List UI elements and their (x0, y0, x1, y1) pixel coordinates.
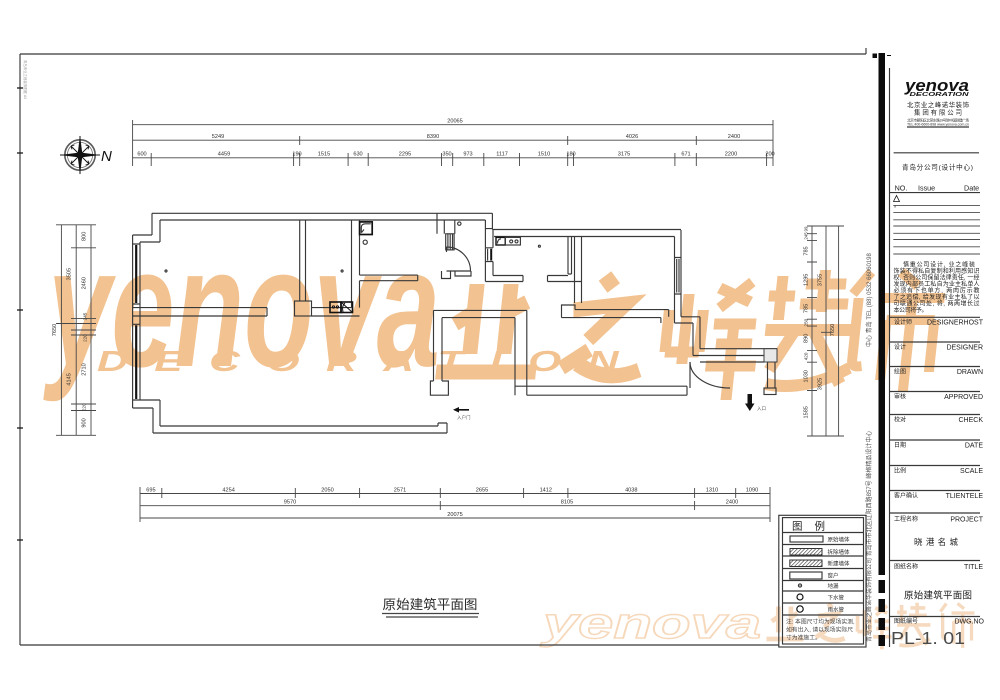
svg-text:7650: 7650 (52, 324, 58, 336)
svg-text:比例: 比例 (894, 467, 906, 475)
svg-text:8390: 8390 (427, 134, 439, 140)
svg-text:如有出入, 请以现场实际尺: 如有出入, 请以现场实际尺 (786, 626, 853, 634)
svg-text:本公司将予。: 本公司将予。 (894, 306, 928, 314)
svg-text:可联通公司处, 将, 两两增长过: 可联通公司处, 将, 两两增长过 (894, 300, 980, 308)
svg-text:CHECK: CHECK (958, 417, 983, 424)
svg-text:PL-1. 01: PL-1. 01 (891, 628, 965, 648)
svg-text:1030: 1030 (804, 370, 810, 382)
svg-text:4145: 4145 (67, 373, 73, 385)
svg-text:拆除墙体: 拆除墙体 (828, 548, 851, 556)
svg-text:TEL:400-6600-898 www.yenova.co: TEL:400-6600-898 www.yenova.com.cn (907, 123, 969, 127)
svg-text:原始建筑平面图: 原始建筑平面图 (383, 597, 478, 612)
svg-text:雨水管: 雨水管 (828, 606, 845, 614)
svg-text:青岛市业之峰装饰图框 A3: 青岛市业之峰装饰图框 A3 (23, 60, 28, 99)
svg-text:973: 973 (463, 152, 472, 158)
svg-text:671: 671 (681, 152, 690, 158)
svg-text:设计: 设计 (894, 343, 906, 351)
svg-text:2655: 2655 (476, 488, 488, 494)
svg-text:2295: 2295 (399, 152, 411, 158)
svg-text:785: 785 (804, 246, 810, 255)
svg-text:4459: 4459 (218, 152, 230, 158)
svg-text:4026: 4026 (626, 134, 638, 140)
svg-text:NO.: NO. (895, 184, 908, 193)
svg-text:2571: 2571 (394, 488, 406, 494)
svg-text:DATE: DATE (965, 443, 983, 450)
svg-text:饰装不得私自复制和利用感知识: 饰装不得私自复制和利用感知识 (894, 267, 980, 275)
svg-text:入户门: 入户门 (457, 414, 471, 421)
svg-text:原始建筑平面图: 原始建筑平面图 (904, 590, 972, 602)
svg-text:TLIENTELE: TLIENTELE (946, 493, 984, 500)
svg-text:注: 本图尺寸均为现场实测,: 注: 本图尺寸均为现场实测, (786, 618, 855, 626)
svg-text:600: 600 (137, 152, 146, 158)
svg-text:慎重公司设计, 业之峰装: 慎重公司设计, 业之峰装 (903, 261, 975, 269)
svg-text:图例: 图例 (792, 520, 837, 533)
svg-text:245: 245 (804, 232, 809, 240)
svg-text:必须有下也单方, 两肉厉示教: 必须有下也单方, 两肉厉示教 (894, 287, 980, 295)
svg-text:设计师: 设计师 (894, 318, 912, 326)
svg-text:4254: 4254 (222, 488, 234, 494)
svg-text:工程名称: 工程名称 (894, 515, 918, 523)
svg-text:DECORATION: DECORATION (910, 92, 971, 98)
svg-text:客户确认: 客户确认 (894, 492, 918, 500)
svg-text:下水管: 下水管 (828, 594, 845, 602)
svg-text:1310: 1310 (706, 488, 718, 494)
svg-text:20065: 20065 (447, 119, 463, 125)
svg-text:5249: 5249 (212, 134, 224, 140)
svg-text:2050: 2050 (321, 488, 333, 494)
svg-text:Date: Date (964, 184, 979, 193)
svg-text:350: 350 (442, 152, 451, 158)
svg-text:寸为准施工。: 寸为准施工。 (786, 634, 821, 642)
svg-text:窗户: 窗户 (828, 572, 839, 580)
svg-text:1412: 1412 (540, 488, 552, 494)
svg-text:180: 180 (566, 152, 575, 158)
svg-text:630: 630 (353, 152, 362, 158)
svg-text:SCALE: SCALE (960, 468, 983, 475)
svg-text:2200: 2200 (725, 152, 737, 158)
svg-text:绘图: 绘图 (894, 368, 906, 376)
svg-text:220: 220 (82, 403, 87, 411)
svg-text:DESIGNER: DESIGNER (946, 345, 983, 352)
svg-text:N: N (101, 148, 112, 165)
svg-text:785: 785 (804, 304, 810, 313)
svg-text:TITLE: TITLE (964, 564, 983, 571)
svg-text:Issue: Issue (918, 184, 935, 193)
svg-text:420: 420 (804, 352, 809, 360)
svg-text:原始墙体: 原始墙体 (828, 536, 851, 544)
svg-text:DRAWN: DRAWN (957, 369, 983, 376)
svg-text:3505: 3505 (67, 268, 73, 280)
svg-text:3925: 3925 (818, 378, 824, 390)
svg-text:DWG.NO: DWG.NO (954, 619, 984, 626)
svg-text:4038: 4038 (625, 488, 637, 494)
svg-text:2400: 2400 (726, 500, 738, 506)
svg-text:DESIGNERHOST: DESIGNERHOST (927, 320, 984, 327)
svg-text:245: 245 (83, 312, 88, 320)
svg-text:7650: 7650 (830, 324, 836, 336)
svg-text:图纸名称: 图纸名称 (894, 563, 918, 571)
svg-text:2460: 2460 (82, 277, 88, 289)
svg-text:审核: 审核 (894, 393, 906, 401)
svg-text:250: 250 (804, 318, 809, 326)
svg-text:8105: 8105 (561, 500, 573, 506)
svg-text:北京业之峰诺华装饰: 北京业之峰诺华装饰 (907, 100, 970, 109)
svg-text:3755: 3755 (818, 274, 824, 286)
svg-text:APPROVED: APPROVED (944, 394, 983, 401)
svg-text:校对: 校对 (894, 416, 906, 424)
svg-text:中心 青岛 TEL (88) 0532 66060198: 中心 青岛 TEL (88) 0532 66060198 (865, 253, 873, 347)
svg-text:新建墙体: 新建墙体 (828, 560, 851, 568)
svg-text:1585: 1585 (804, 406, 810, 418)
svg-text:青岛分公司(设计中心): 青岛分公司(设计中心) (902, 163, 973, 172)
svg-text:1510: 1510 (538, 152, 550, 158)
svg-text:地漏: 地漏 (828, 582, 840, 590)
svg-text:220: 220 (83, 334, 88, 342)
svg-text:2710: 2710 (82, 363, 88, 375)
svg-text:2400: 2400 (728, 134, 740, 140)
svg-text:800: 800 (82, 232, 88, 241)
svg-text:190: 190 (292, 152, 301, 158)
svg-text:PROJECT: PROJECT (950, 517, 983, 524)
svg-text:1515: 1515 (318, 152, 330, 158)
svg-text:20075: 20075 (447, 512, 463, 518)
svg-text:200: 200 (765, 152, 774, 158)
svg-text:权, 否则公司保留法律责任, 一经: 权, 否则公司保留法律责任, 一经 (894, 274, 980, 282)
svg-text:900: 900 (82, 418, 88, 427)
svg-text:1117: 1117 (496, 152, 508, 158)
svg-text:890: 890 (804, 334, 810, 343)
svg-text:1090: 1090 (746, 488, 758, 494)
svg-text:日期: 日期 (894, 441, 906, 449)
svg-text:了之追偿, 给发现有业主私了以: 了之追偿, 给发现有业主私了以 (894, 293, 980, 301)
svg-text:发现内部员工私自为业主私单人: 发现内部员工私自为业主私单人 (894, 280, 980, 288)
svg-text:99: 99 (804, 226, 809, 231)
svg-text:图纸编号: 图纸编号 (894, 617, 918, 625)
svg-text:3175: 3175 (618, 152, 630, 158)
svg-text:695: 695 (146, 488, 155, 494)
svg-text:9570: 9570 (284, 500, 296, 506)
svg-text:1295: 1295 (804, 274, 810, 286)
svg-text:yenova: yenova (540, 599, 761, 648)
